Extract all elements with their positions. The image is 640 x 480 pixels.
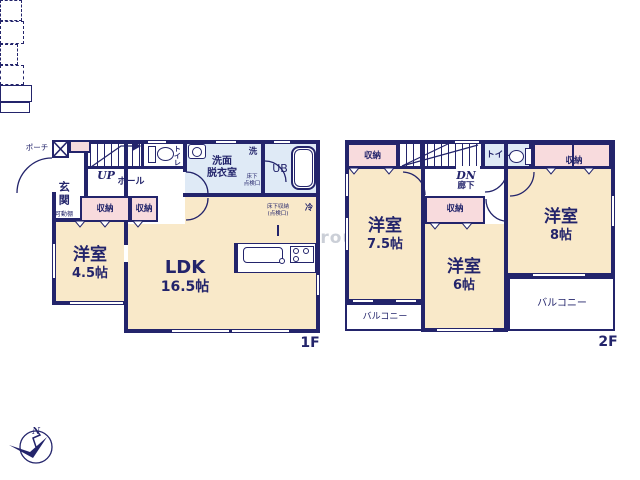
notch-icon: [430, 223, 440, 229]
notch-icon: [384, 168, 394, 174]
notch-icon: [100, 221, 110, 227]
compass-icon: N: [9, 427, 52, 463]
floor-plan-page: ポーチ 玄関 可動棚 UP ホール トイレ 洗面 脱衣室 洗 床下 点検口 UB…: [0, 0, 640, 480]
ub-door-arc: [265, 161, 286, 182]
notch-icon: [75, 221, 85, 227]
stairs-1f-arrowhead: [133, 142, 140, 150]
compass-swoosh: [9, 437, 47, 458]
plan-annotations: N: [0, 0, 640, 480]
notch-icon: [462, 223, 472, 229]
notch-icon: [584, 168, 594, 174]
closet-notches: [75, 168, 594, 229]
door-arcs: [17, 158, 534, 221]
toilet2f-door-arc: [485, 170, 507, 192]
room8-door-arc: [510, 172, 534, 196]
compass-north-label: N: [31, 427, 41, 437]
notch-icon: [133, 221, 143, 227]
stairs-1f-arrow-line: [91, 146, 135, 167]
room75-door-arc: [403, 172, 425, 195]
entrance-door-arc: [17, 158, 52, 193]
ldk-door-arc: [186, 198, 208, 220]
entrance-cross: [53, 141, 68, 157]
washroom-door-arc: [186, 172, 208, 194]
notch-icon: [349, 168, 359, 174]
stair-direction-lines: [91, 142, 478, 167]
room6-door-arc: [486, 199, 504, 221]
notch-icon: [546, 168, 556, 174]
